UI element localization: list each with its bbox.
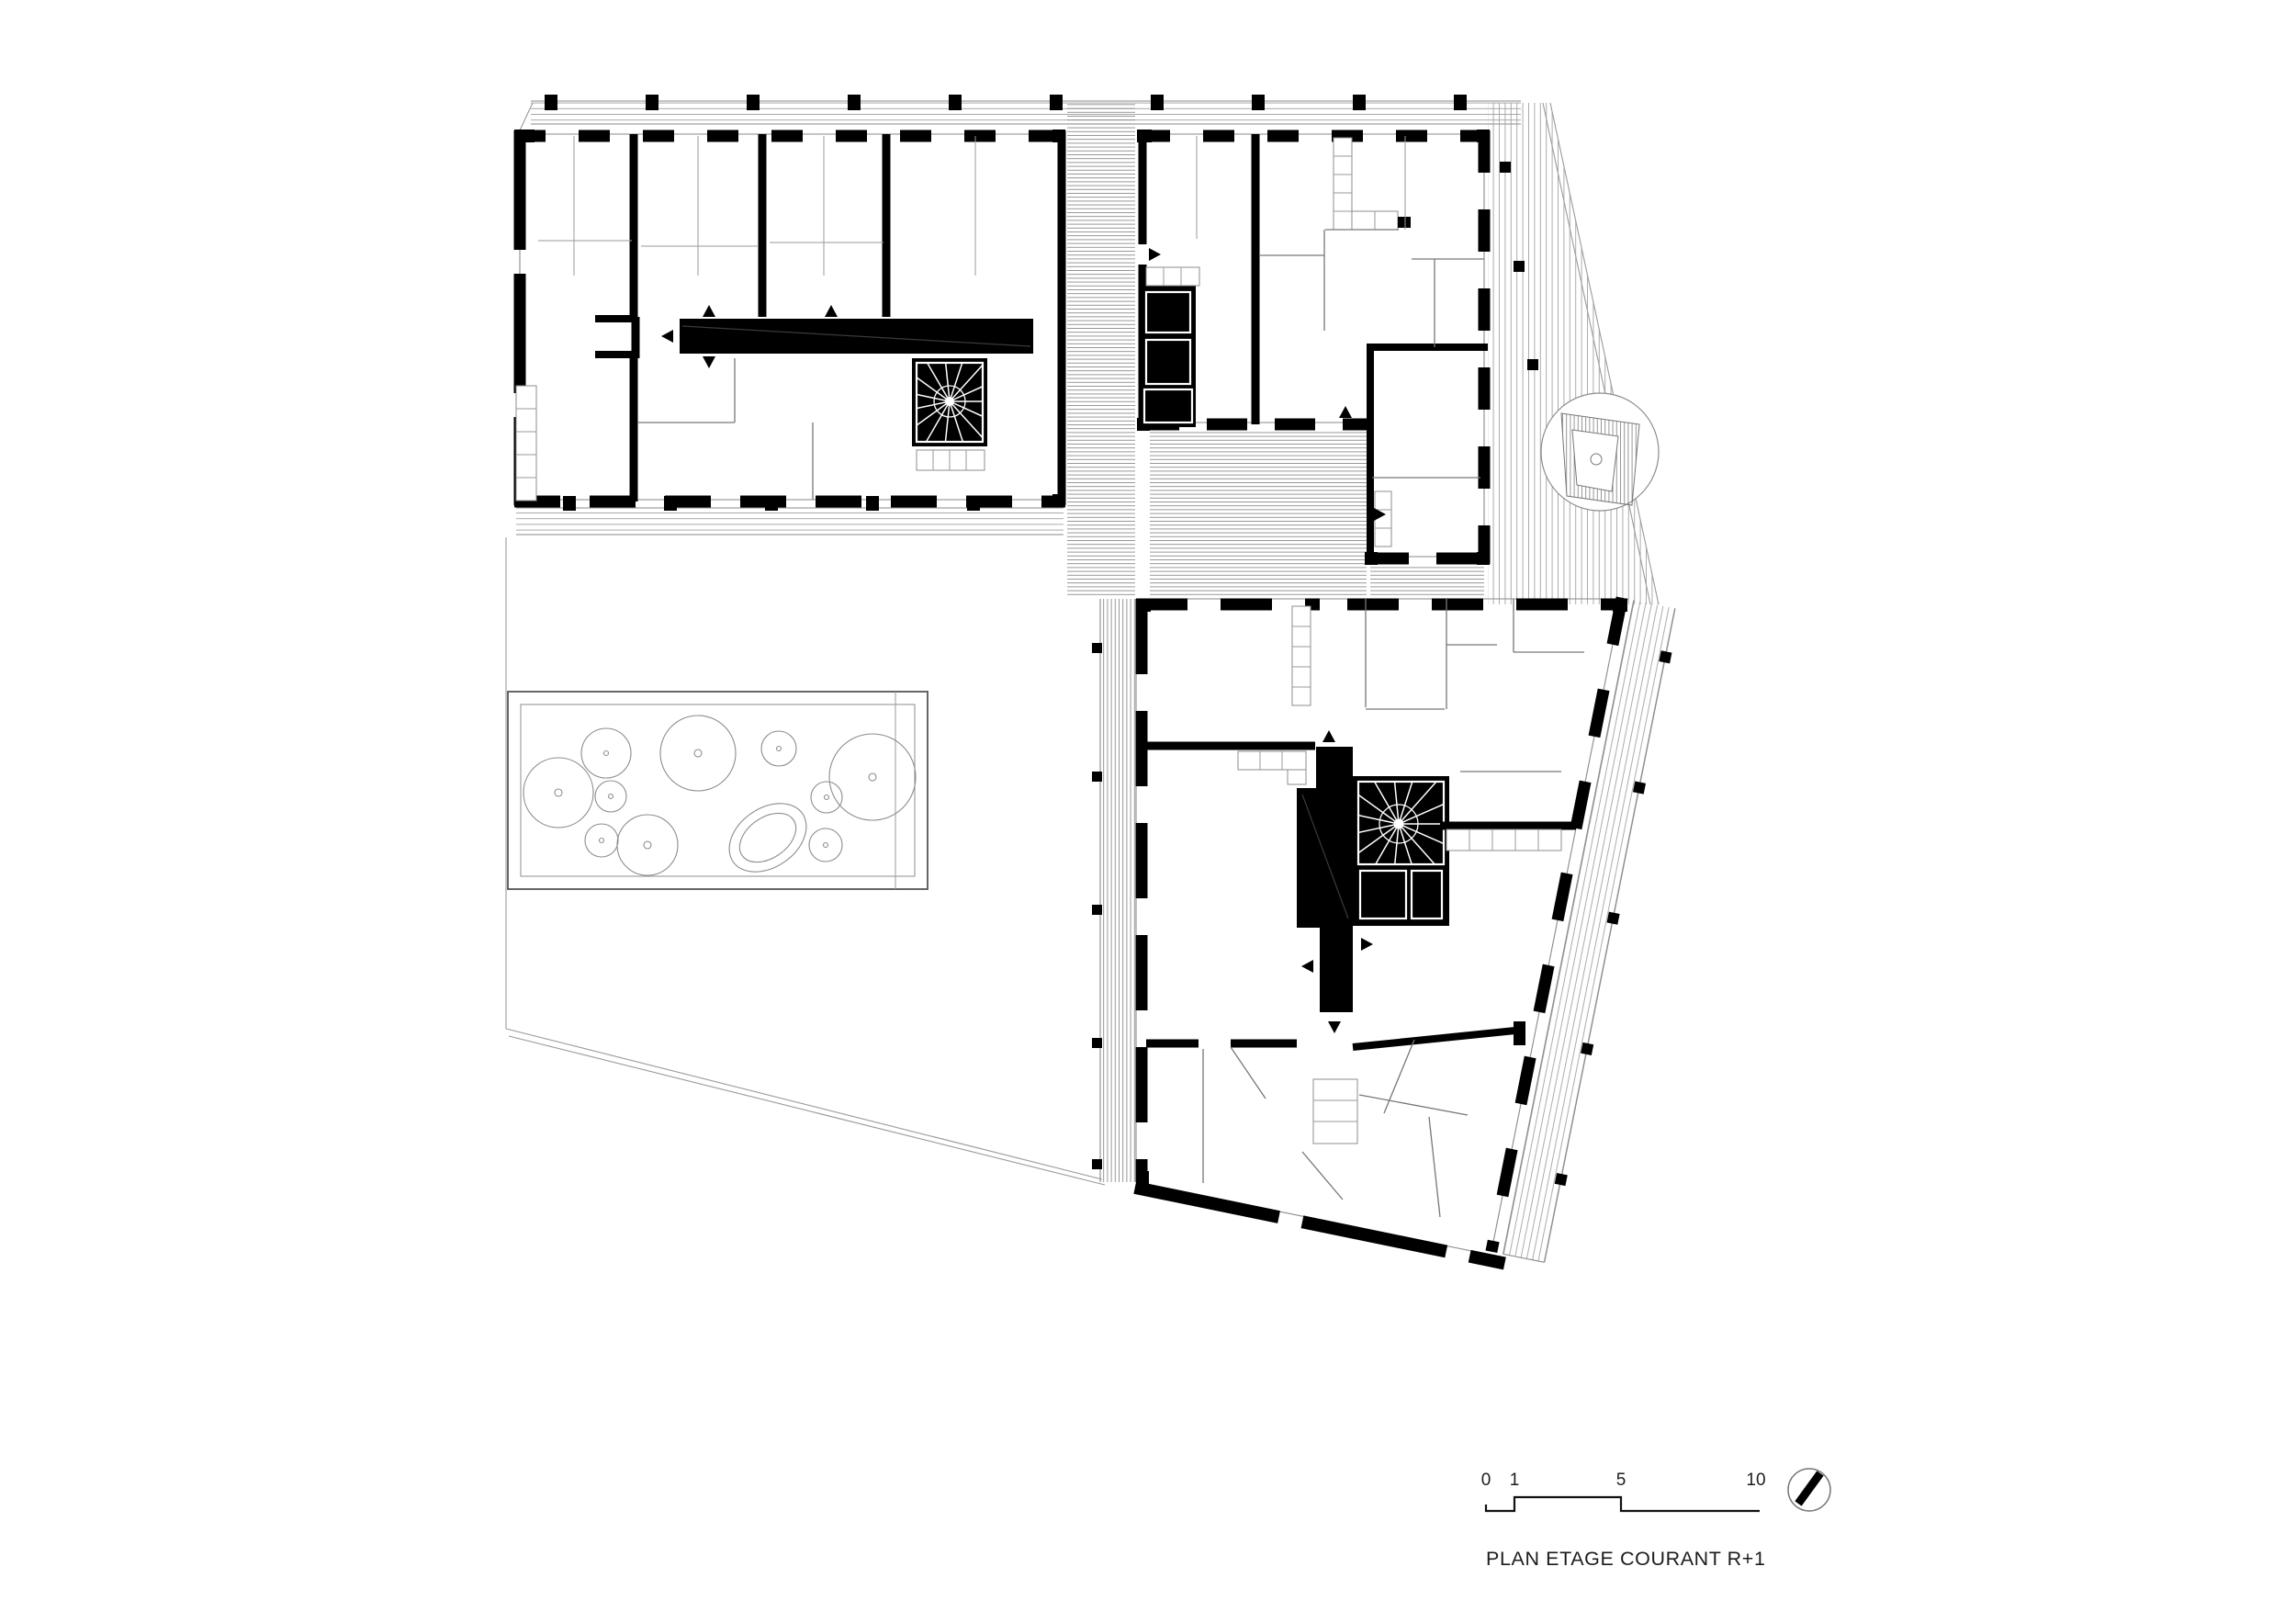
scale-tick-0: 0 xyxy=(1481,1471,1491,1490)
spiral-stair xyxy=(897,348,1003,455)
kitchen-shelf xyxy=(1446,829,1561,851)
elevator-shafts xyxy=(1142,285,1196,427)
paper-background xyxy=(0,0,2296,1623)
plan-title: PLAN ETAGE COURANT R+1 xyxy=(1486,1548,1766,1570)
round-balcony xyxy=(1541,393,1659,511)
floor-plan-svg: 0 1 5 10 PLAN ETAGE COURANT R+1 xyxy=(0,0,2296,1623)
wall-closet xyxy=(516,386,536,501)
north-arrow-icon xyxy=(1788,1469,1830,1511)
drawing-sheet: 0 1 5 10 PLAN ETAGE COURANT R+1 xyxy=(0,0,2296,1623)
scale-tick-5: 5 xyxy=(1616,1471,1626,1490)
corridor-core xyxy=(680,319,1033,354)
scale-tick-1: 1 xyxy=(1510,1471,1520,1490)
shelf-below-stair xyxy=(917,450,985,470)
closet-lower xyxy=(1313,1079,1357,1144)
tall-closet-south xyxy=(1292,606,1311,705)
entry-shelf xyxy=(1146,267,1199,286)
scale-tick-10: 10 xyxy=(1746,1471,1765,1490)
